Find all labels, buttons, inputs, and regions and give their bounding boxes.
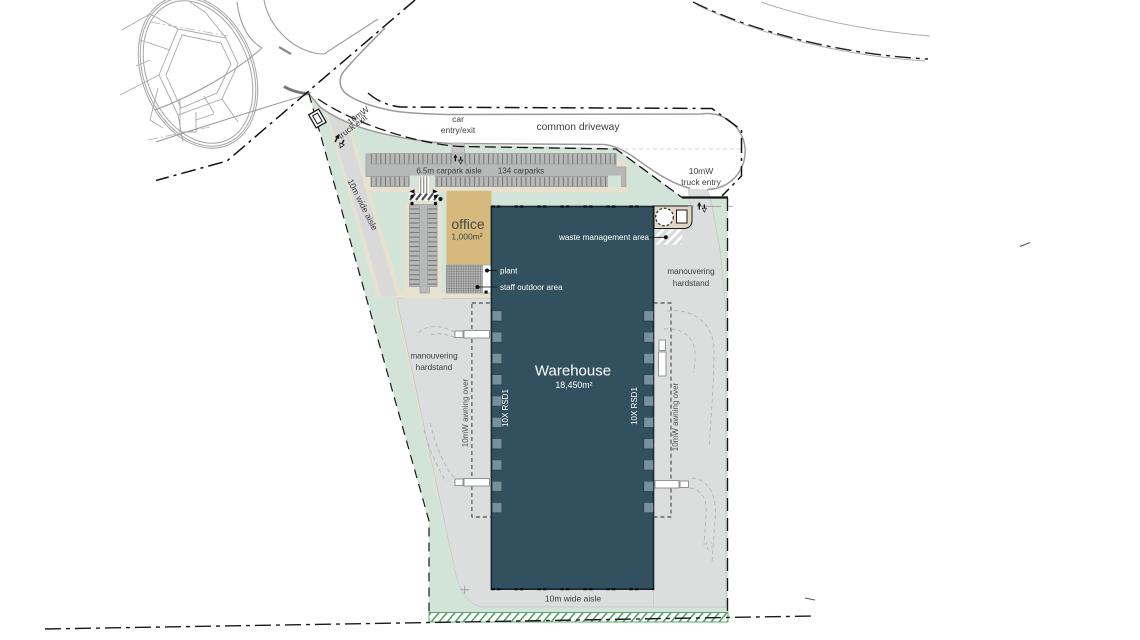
- svg-text:10mW awning over: 10mW awning over: [461, 378, 470, 447]
- svg-text:staff outdoor area: staff outdoor area: [500, 283, 563, 292]
- svg-text:manouvering: manouvering: [667, 267, 715, 276]
- svg-text:18,450m²: 18,450m²: [555, 380, 592, 390]
- svg-text:10X RSD1: 10X RSD1: [501, 389, 510, 427]
- svg-text:manouvering: manouvering: [410, 352, 458, 361]
- svg-text:waste management area: waste management area: [558, 233, 650, 242]
- svg-text:134 carparks: 134 carparks: [498, 167, 544, 176]
- svg-text:hardstand: hardstand: [673, 279, 710, 288]
- svg-text:Warehouse: Warehouse: [535, 363, 611, 380]
- svg-text:10m wide aisle: 10m wide aisle: [545, 594, 601, 604]
- svg-text:1,000m²: 1,000m²: [451, 232, 482, 242]
- svg-text:plant: plant: [500, 267, 518, 276]
- svg-text:hardstand: hardstand: [416, 363, 453, 372]
- svg-text:entry/exit: entry/exit: [441, 125, 476, 135]
- svg-text:common driveway: common driveway: [537, 122, 621, 133]
- svg-text:office: office: [451, 216, 484, 232]
- svg-text:10mW: 10mW: [689, 166, 714, 176]
- svg-text:6.5m carpark aisle: 6.5m carpark aisle: [416, 167, 482, 176]
- svg-text:car: car: [452, 114, 464, 124]
- svg-text:10mW awning over: 10mW awning over: [671, 382, 680, 451]
- svg-text:truck entry: truck entry: [681, 177, 721, 187]
- svg-text:10X RSD1: 10X RSD1: [630, 387, 639, 425]
